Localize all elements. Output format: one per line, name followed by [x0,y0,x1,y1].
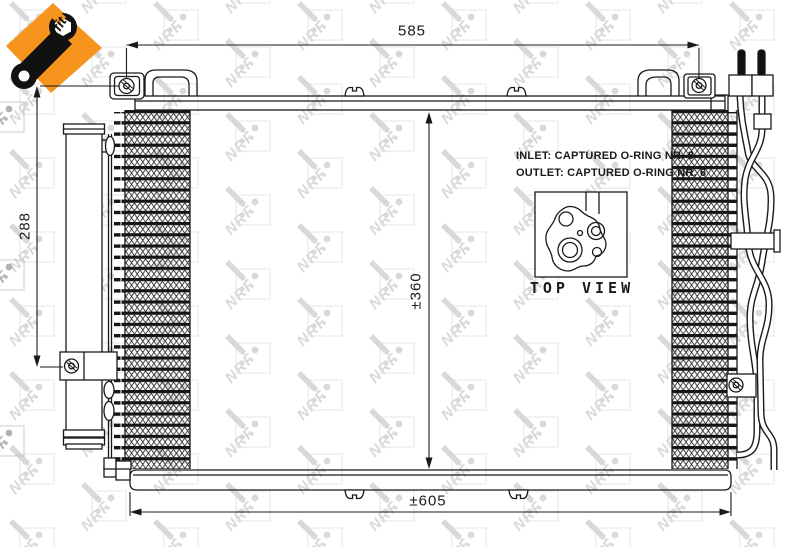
top-view-inset [535,192,627,277]
pipe-fitting [754,114,771,129]
drawing-canvas: NRF [0,0,800,547]
dimension-288-label: 288 [17,212,34,240]
dimension-360-label: ±360 [408,272,425,309]
outlet-note: OUTLET: CAPTURED O-RING NR. 6 [516,167,706,179]
dimension-605-label: ±605 [409,493,446,510]
top-view-label: TOP VIEW [530,279,634,297]
dimension-585-label: 585 [398,23,426,40]
condenser-technical-drawing: NRF [0,0,800,547]
pipe-bracket-bar [731,233,777,249]
drier-bracket [60,352,117,380]
lower-right-bracket [727,374,756,397]
inlet-note: INLET: CAPTURED O-RING NR. 8 [516,150,694,162]
